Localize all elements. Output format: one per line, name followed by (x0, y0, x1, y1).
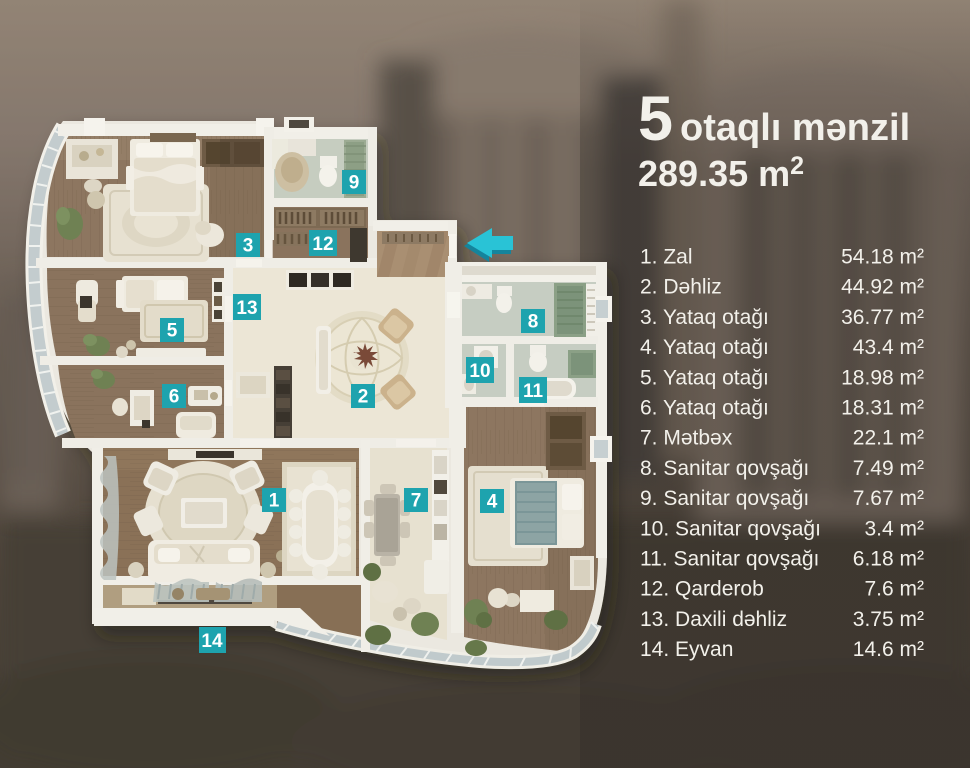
svg-text:6: 6 (169, 387, 180, 408)
svg-text:5: 5 (167, 321, 178, 342)
svg-text:44.92 m²: 44.92 m² (841, 276, 924, 299)
svg-text:7.67 m²: 7.67 m² (853, 487, 924, 510)
svg-text:1. Zal: 1. Zal (640, 246, 693, 269)
svg-text:11: 11 (523, 381, 544, 402)
svg-text:8. Sanitar qovşağı: 8. Sanitar qovşağı (640, 457, 809, 480)
svg-text:3: 3 (243, 236, 254, 257)
svg-text:2: 2 (358, 387, 369, 408)
svg-text:7.6 m²: 7.6 m² (864, 578, 924, 601)
svg-text:5. Yataq otağı: 5. Yataq otağı (640, 366, 769, 389)
svg-text:10: 10 (469, 361, 490, 382)
svg-text:7. Mətbəx: 7. Mətbəx (640, 427, 733, 450)
svg-text:10. Sanitar qovşağı: 10. Sanitar qovşağı (640, 517, 821, 540)
svg-text:3. Yataq otağı: 3. Yataq otağı (640, 306, 769, 329)
svg-text:4. Yataq otağı: 4. Yataq otağı (640, 336, 769, 359)
svg-text:6. Yataq otağı: 6. Yataq otağı (640, 397, 769, 420)
svg-text:9: 9 (349, 173, 360, 194)
svg-text:36.77 m²: 36.77 m² (841, 306, 924, 329)
svg-text:12: 12 (312, 234, 333, 255)
svg-text:2. Dəhliz: 2. Dəhliz (640, 276, 722, 299)
svg-text:3.75 m²: 3.75 m² (853, 608, 924, 631)
svg-text:7.49 m²: 7.49 m² (853, 457, 924, 480)
svg-text:54.18 m²: 54.18 m² (841, 246, 924, 269)
svg-text:8: 8 (528, 312, 539, 333)
svg-text:12. Qarderob: 12. Qarderob (640, 578, 764, 601)
svg-text:14.6 m²: 14.6 m² (853, 638, 924, 661)
svg-text:3.4 m²: 3.4 m² (864, 517, 924, 540)
svg-text:13: 13 (236, 298, 257, 319)
svg-text:43.4 m²: 43.4 m² (853, 336, 924, 359)
svg-text:5: 5 (638, 84, 673, 154)
svg-text:18.98 m²: 18.98 m² (841, 366, 924, 389)
svg-text:otaqlı mənzil: otaqlı mənzil (680, 107, 910, 149)
svg-text:11. Sanitar qovşağı: 11. Sanitar qovşağı (640, 548, 819, 571)
svg-text:9. Sanitar qovşağı: 9. Sanitar qovşağı (640, 487, 809, 510)
svg-text:18.31 m²: 18.31 m² (841, 397, 924, 420)
svg-text:6.18 m²: 6.18 m² (853, 548, 924, 571)
svg-text:4: 4 (487, 492, 498, 513)
svg-text:289.35 m2: 289.35 m2 (638, 152, 804, 194)
svg-text:13. Daxili dəhliz: 13. Daxili dəhliz (640, 608, 787, 631)
svg-text:1: 1 (269, 491, 280, 512)
svg-text:14: 14 (201, 631, 223, 652)
svg-text:22.1 m²: 22.1 m² (853, 427, 924, 450)
svg-text:14. Eyvan: 14. Eyvan (640, 638, 733, 661)
svg-text:7: 7 (411, 491, 422, 512)
